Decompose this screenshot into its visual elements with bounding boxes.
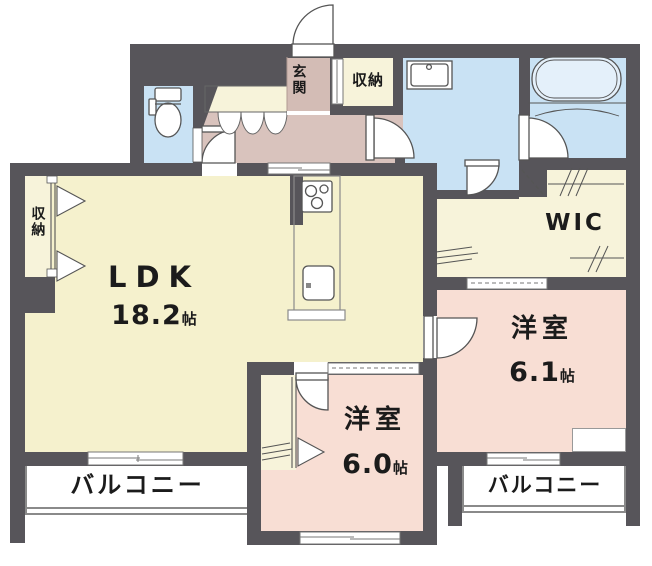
balcony-rail <box>27 507 248 509</box>
balcony-left-label: バルコニー <box>45 472 230 498</box>
ldk-balcony-window <box>88 452 183 465</box>
ldk-label: LDK <box>88 262 220 294</box>
storage-ldk-label: 収納 <box>29 206 44 238</box>
wic-bedroom-slider <box>467 278 547 289</box>
bedroom-right-label: 洋室 <box>482 315 602 344</box>
bedroom-right-size: 6.1帖 <box>482 358 602 388</box>
entrance-door-swing <box>292 5 334 57</box>
wic-label: WIC <box>530 211 620 236</box>
bedroom-bottom-closet <box>261 375 296 470</box>
balcony-right-label: バルコニー <box>470 474 620 497</box>
bedroom-right-balcony-window <box>487 453 560 465</box>
toilet-room-floor <box>143 86 193 163</box>
floor-plan: LDK 18.2帖 洋室 6.1帖 洋室 6.0帖 WIC 玄関 収納 収納 バ… <box>0 0 652 566</box>
hall-closet <box>205 86 287 112</box>
bathroom-floor <box>528 53 626 163</box>
bedroom-bottom-label: 洋室 <box>315 406 435 435</box>
bedroom-bottom-size: 6.0帖 <box>315 450 435 480</box>
wic-floor-upper <box>547 170 626 197</box>
ldk-size: 18.2帖 <box>88 301 220 331</box>
entrance-label: 玄関 <box>290 64 305 96</box>
storage-top-label: 収納 <box>343 72 393 89</box>
pillar-notch <box>572 428 626 452</box>
balcony-rail <box>464 505 624 507</box>
